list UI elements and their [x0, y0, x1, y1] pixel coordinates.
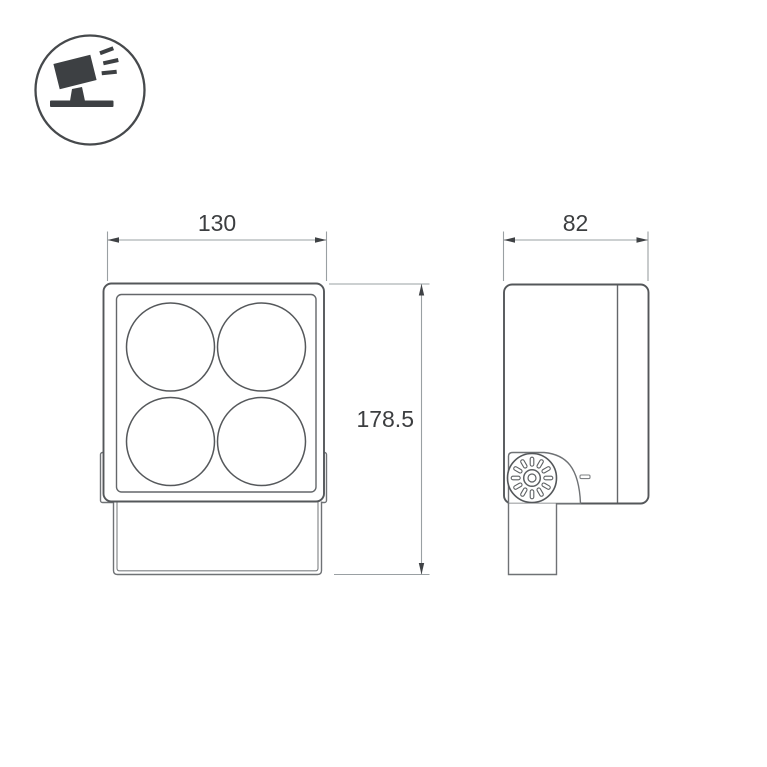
bracket-base-outer	[114, 502, 322, 575]
height-dimension-label: 178.5	[329, 406, 414, 432]
front-view	[101, 284, 327, 575]
lens-circle	[218, 398, 306, 486]
arrow-down-icon	[419, 563, 424, 575]
adjustment-knob	[508, 454, 557, 503]
arrow-left-icon	[108, 237, 120, 242]
arrow-right-icon	[315, 237, 327, 242]
lens-circle	[127, 303, 215, 391]
lens-circle	[127, 398, 215, 486]
depth-dimension-label: 82	[503, 210, 648, 236]
bracket-arm	[509, 504, 557, 575]
lens-circle	[218, 303, 306, 391]
arrow-right-icon	[637, 237, 649, 242]
width-dimension-label: 130	[107, 210, 327, 236]
drawing-canvas: 130 82 178.5	[0, 0, 767, 767]
side-view	[504, 285, 649, 575]
technical-drawing	[0, 0, 767, 767]
arrow-up-icon	[419, 284, 424, 296]
arrow-left-icon	[504, 237, 516, 242]
